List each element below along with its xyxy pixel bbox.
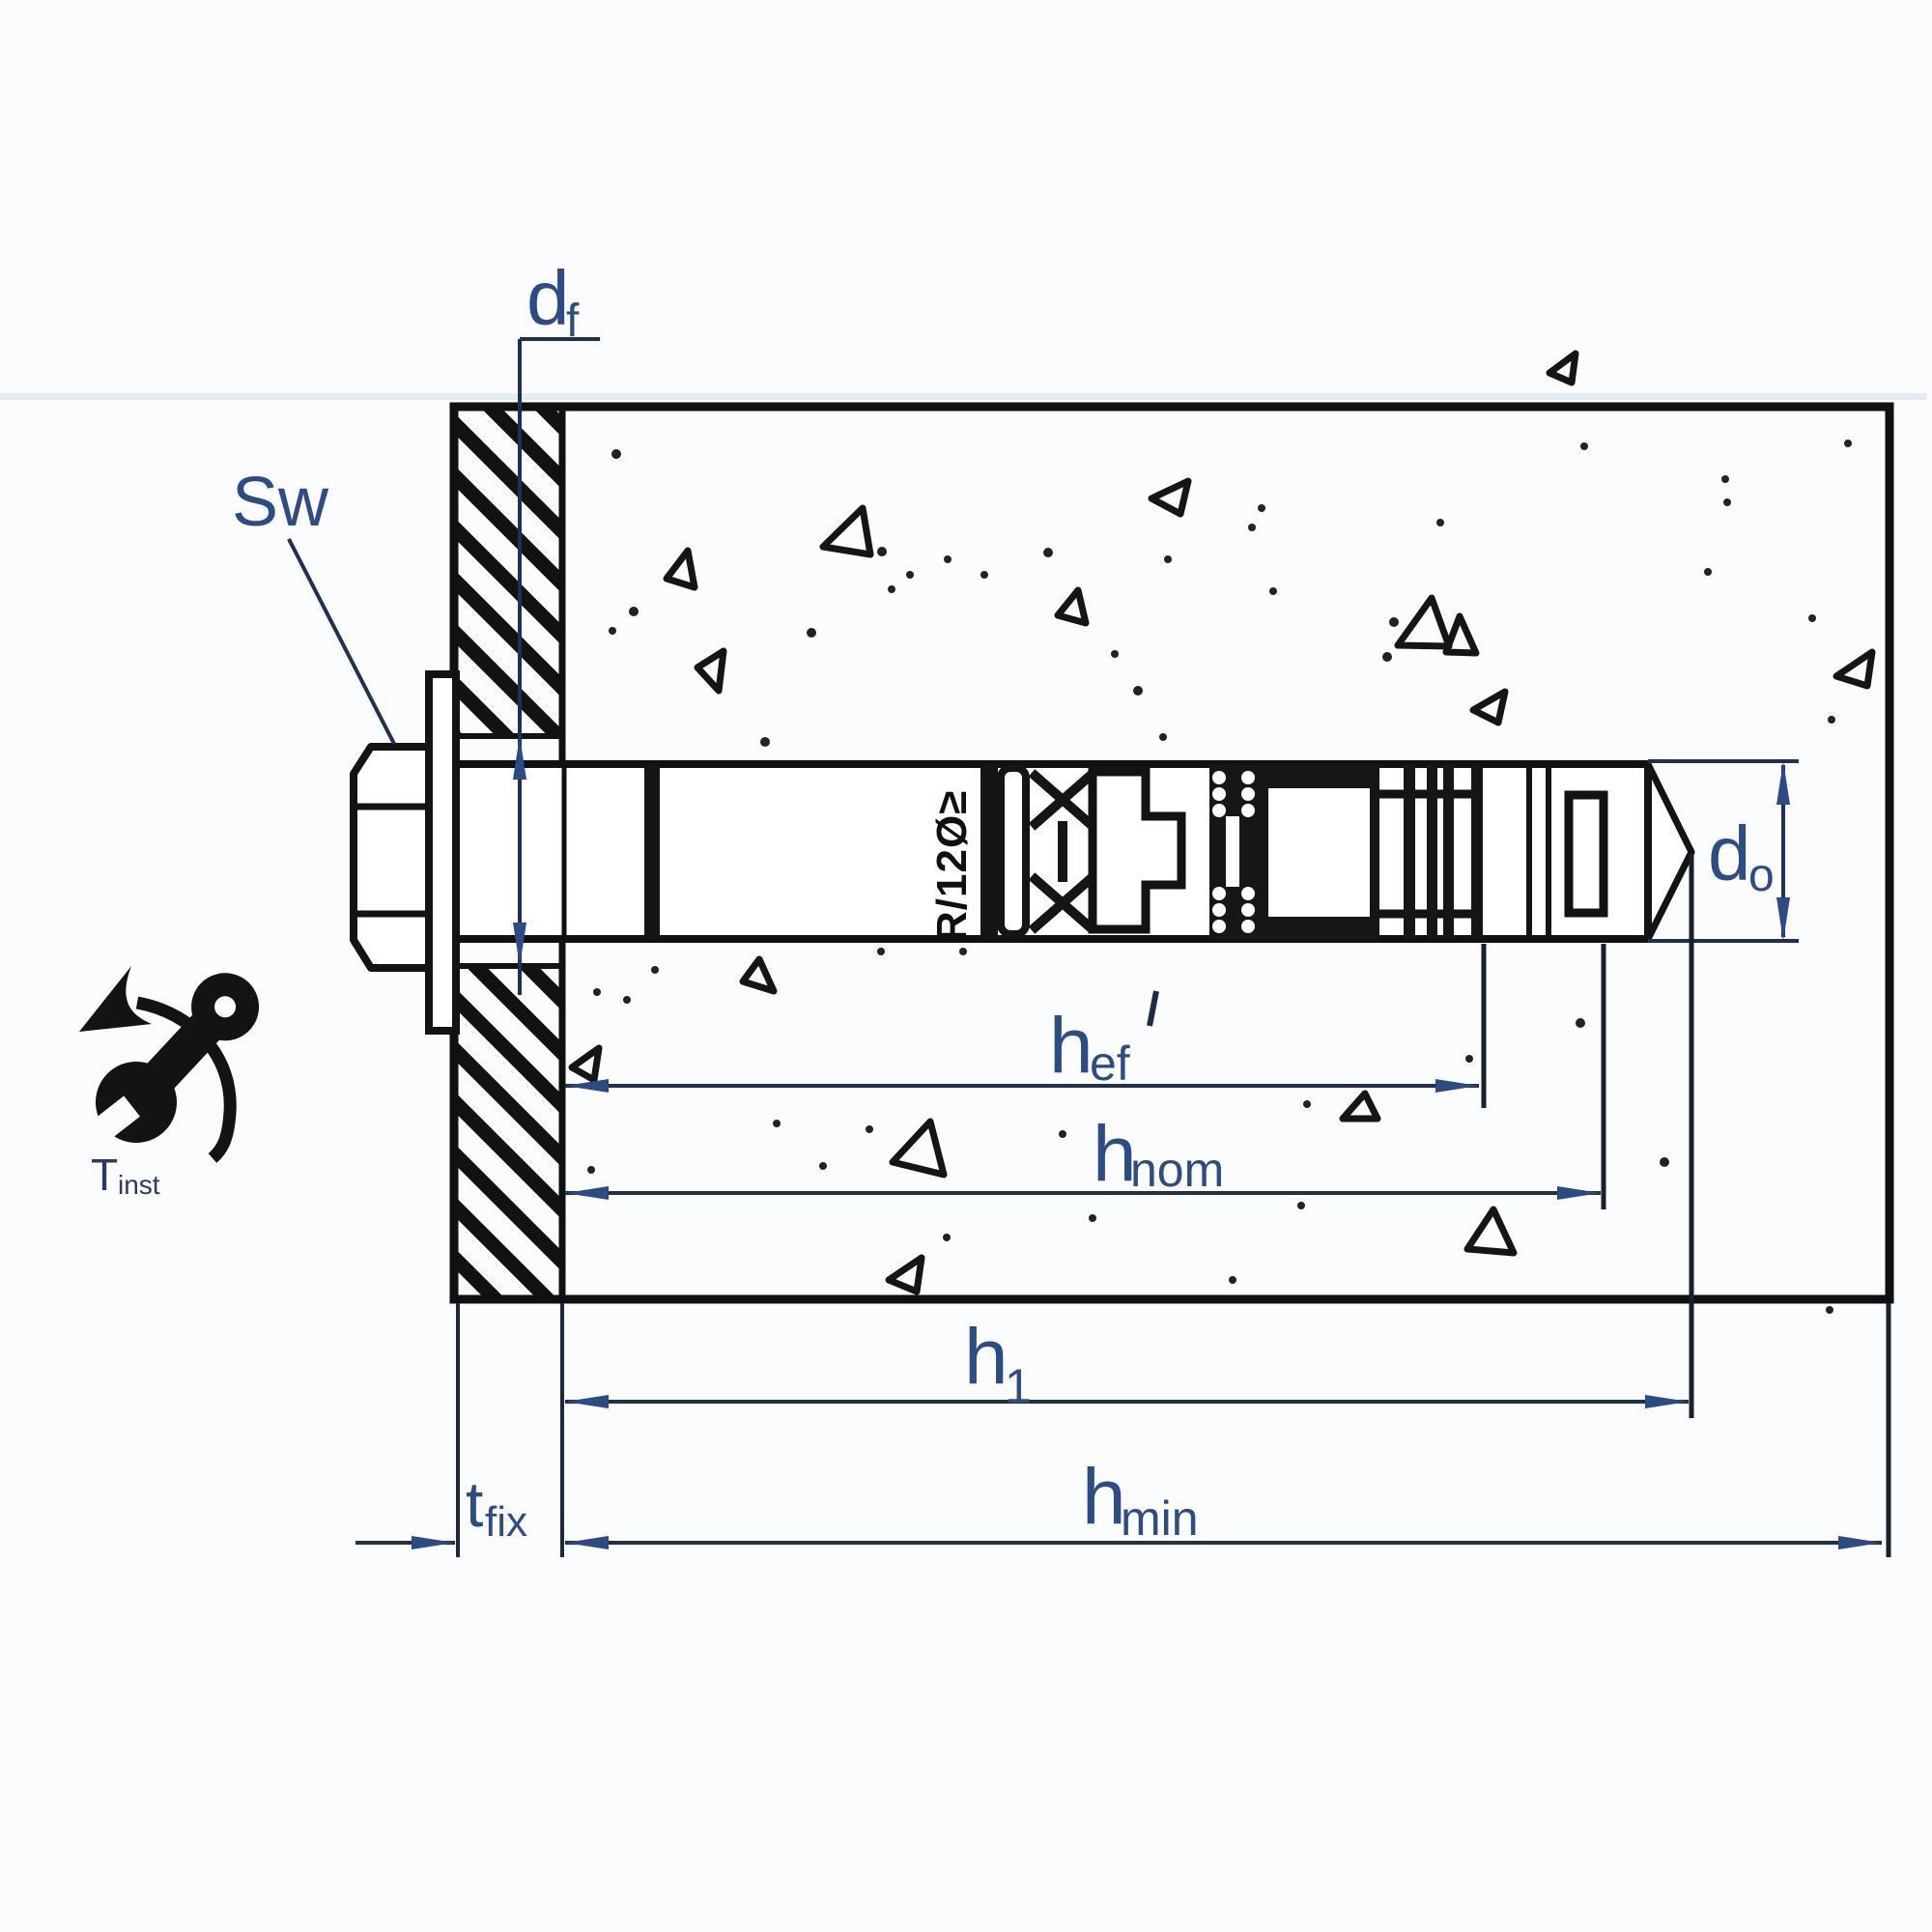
svg-text:1: 1 [1005,1359,1032,1413]
svg-text:f: f [566,296,580,347]
svg-text:fix: fix [485,1498,527,1546]
svg-text:d: d [526,255,570,341]
svg-text:nom: nom [1130,1143,1224,1197]
svg-text:R/12Ø≥: R/12Ø≥ [928,790,976,942]
svg-text:h: h [964,1313,1009,1401]
svg-text:h: h [1049,1002,1094,1090]
svg-text:min: min [1121,1492,1199,1546]
svg-text:d: d [1708,810,1751,896]
svg-text:h: h [1082,1453,1126,1541]
svg-text:t: t [466,1468,483,1540]
svg-text:ef: ef [1090,1037,1130,1091]
svg-text:inst: inst [118,1170,160,1200]
svg-text:o: o [1748,850,1775,901]
svg-text:T: T [91,1150,118,1200]
svg-text:Sw: Sw [232,464,329,541]
